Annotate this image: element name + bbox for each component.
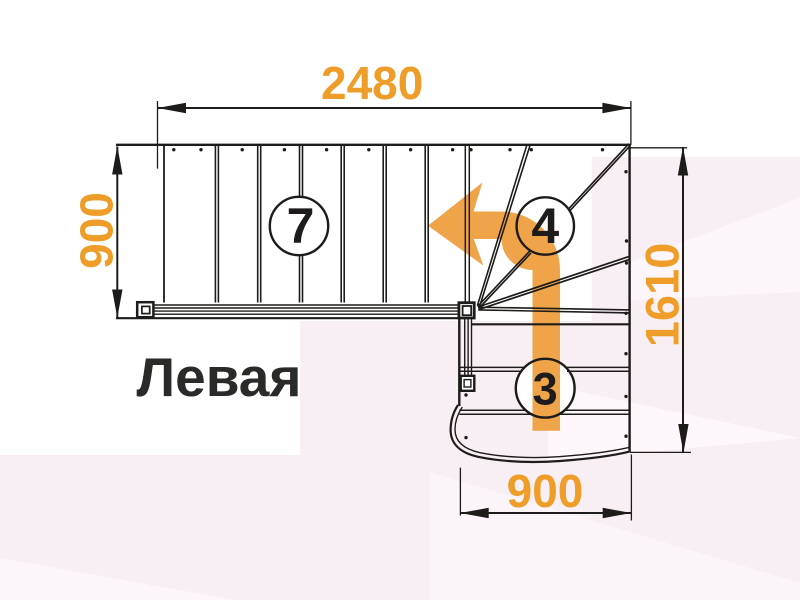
svg-text:Левая: Левая (137, 346, 302, 408)
svg-text:3: 3 (533, 363, 558, 414)
svg-text:4: 4 (531, 198, 559, 254)
svg-text:900: 900 (71, 192, 123, 269)
svg-text:2480: 2480 (321, 57, 423, 109)
svg-text:900: 900 (507, 465, 584, 517)
svg-text:7: 7 (287, 198, 315, 254)
svg-text:1610: 1610 (636, 243, 689, 348)
